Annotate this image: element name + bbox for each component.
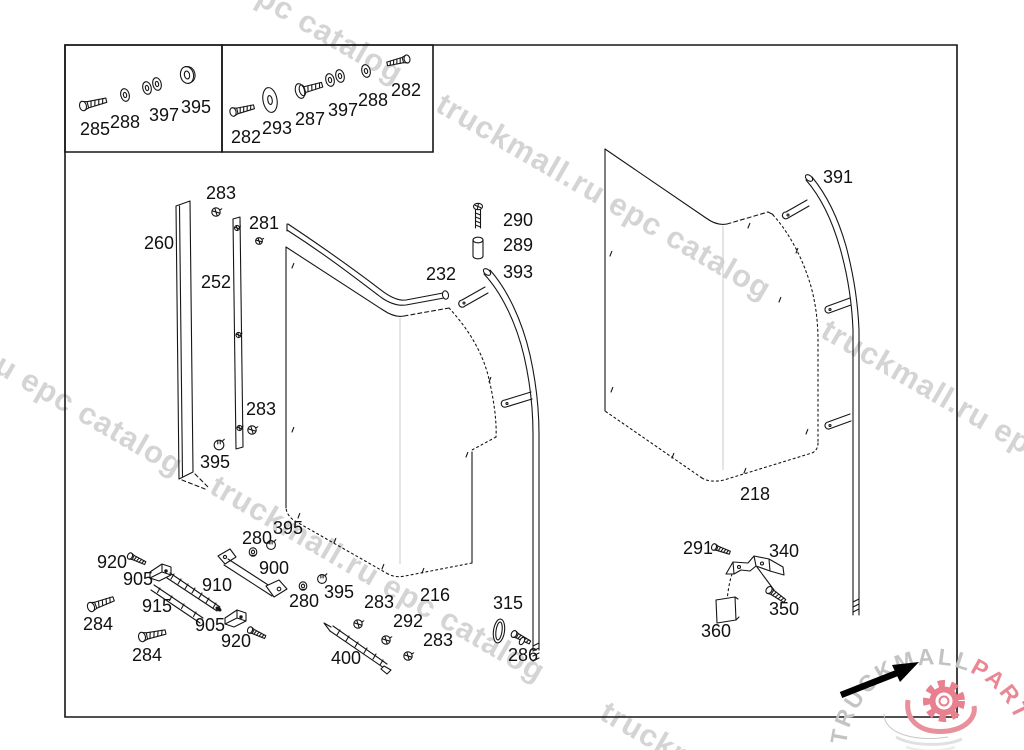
callout-910: 910	[202, 575, 232, 595]
screw-282-icon	[229, 103, 255, 117]
callout-395: 395	[200, 452, 230, 472]
callout-286: 286	[508, 645, 538, 665]
callout-293: 293	[262, 118, 292, 138]
callout-283: 283	[206, 183, 236, 203]
callout-292: 292	[393, 611, 423, 631]
screw-283-icon	[404, 652, 414, 660]
screw-283-icon	[354, 620, 364, 628]
callout-289: 289	[503, 235, 533, 255]
strip-252	[233, 217, 243, 449]
screw-283-icon	[248, 426, 258, 434]
callout-291: 291	[683, 538, 713, 558]
callout-282: 282	[391, 80, 421, 100]
callout-920: 920	[221, 631, 251, 651]
callout-397: 397	[328, 100, 358, 120]
callout-360: 360	[701, 621, 731, 641]
bracket-905-icon	[225, 610, 246, 627]
callout-216: 216	[420, 585, 450, 605]
bolt-284-icon	[138, 627, 167, 642]
screw-281-icon	[256, 238, 264, 245]
callout-218: 218	[740, 484, 770, 504]
callout-395: 395	[324, 582, 354, 602]
callout-252: 252	[201, 272, 231, 292]
callout-284: 284	[132, 645, 162, 665]
callout-915: 915	[142, 596, 172, 616]
panel-218	[605, 149, 818, 481]
callout-280: 280	[242, 528, 272, 548]
washer-288-icon	[119, 88, 130, 102]
callout-290: 290	[503, 210, 533, 230]
callout-395: 395	[273, 518, 303, 538]
bolt-282-icon	[386, 54, 411, 68]
callout-283: 283	[246, 399, 276, 419]
washer-397-icon	[141, 81, 152, 95]
plate-360	[716, 597, 739, 623]
callout-284: 284	[83, 614, 113, 634]
callout-315: 315	[493, 593, 523, 613]
bolt-287-icon	[294, 77, 325, 99]
callout-400: 400	[331, 648, 361, 668]
callout-280: 280	[289, 591, 319, 611]
screw-283-icon	[212, 208, 222, 216]
screw-291-icon	[711, 543, 731, 556]
callout-393: 393	[503, 262, 533, 282]
washer-397-icon	[324, 73, 335, 87]
screw-286-icon	[510, 630, 532, 646]
callout-288: 288	[358, 90, 388, 110]
washer-397-icon	[151, 77, 162, 91]
callout-900: 900	[259, 558, 289, 578]
grommet-395-icon	[214, 439, 224, 450]
nut-280-icon	[249, 548, 257, 556]
washer-288-icon	[360, 64, 371, 78]
screw-285-icon	[79, 96, 108, 112]
sleeve-289-icon	[473, 237, 483, 259]
callout-232: 232	[426, 264, 456, 284]
callout-340: 340	[769, 541, 799, 561]
callout-283: 283	[423, 630, 453, 650]
callout-397: 397	[149, 105, 179, 125]
callout-283: 283	[364, 592, 394, 612]
nut-280-icon	[299, 582, 307, 590]
plug-395-icon	[179, 65, 197, 85]
callout-285: 285	[80, 119, 110, 139]
nut-292-icon	[382, 636, 392, 644]
callout-287: 287	[295, 109, 325, 129]
trim-232	[287, 224, 449, 305]
callout-282: 282	[231, 127, 261, 147]
callout-350: 350	[769, 599, 799, 619]
callout-288: 288	[110, 112, 140, 132]
strip-260	[176, 201, 208, 489]
callout-260: 260	[144, 233, 174, 253]
screw-920-icon	[126, 552, 146, 566]
parts-diagram-canvas: truckmall.ru epc catalog truckmall.ru ep…	[0, 0, 1024, 750]
bolt-284-icon	[86, 594, 115, 612]
gear-icon	[908, 685, 975, 732]
grommet-315-icon	[492, 618, 506, 643]
callout-905: 905	[123, 569, 153, 589]
callout-395: 395	[181, 97, 211, 117]
washer-397-icon	[334, 69, 345, 83]
screw-290-icon	[474, 203, 483, 228]
callout-281: 281	[249, 213, 279, 233]
callout-391: 391	[823, 167, 853, 187]
washer-293-icon	[261, 86, 279, 113]
